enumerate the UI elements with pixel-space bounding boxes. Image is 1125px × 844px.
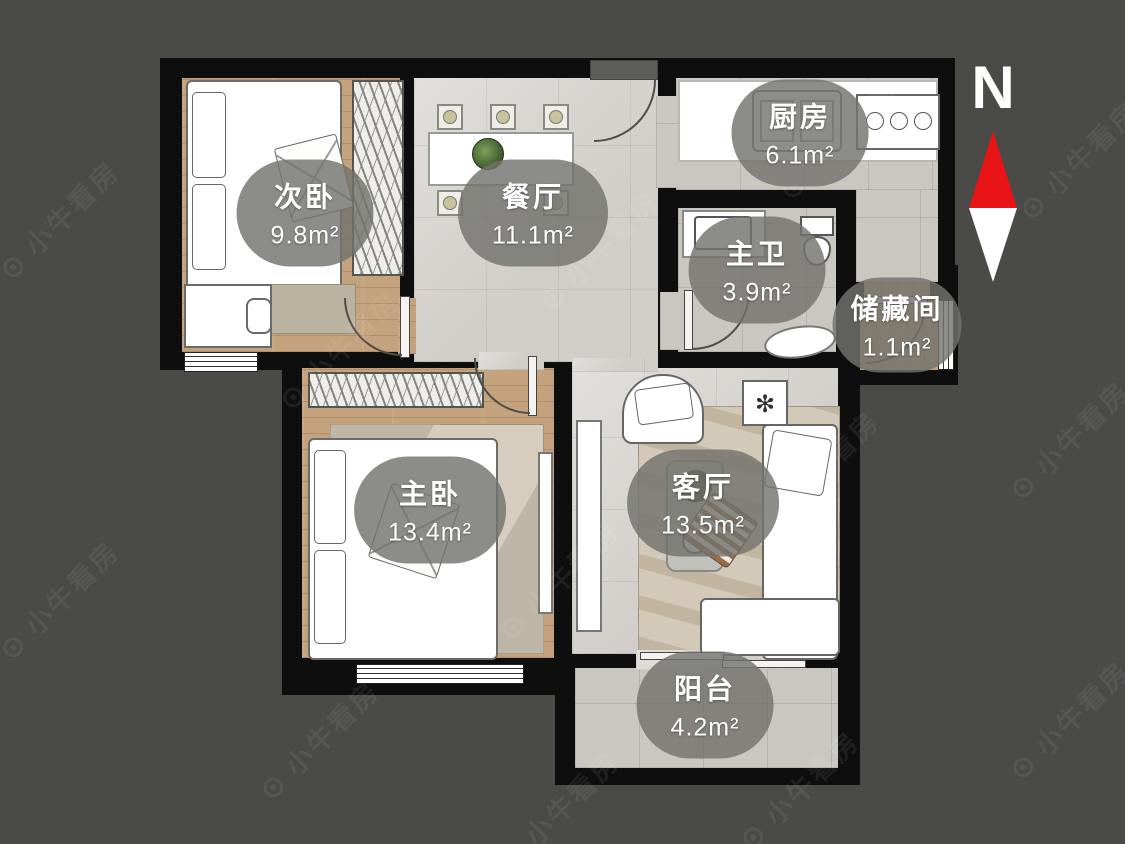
room-area: 1.1m² (850, 334, 943, 363)
room-area: 4.2m² (671, 714, 740, 743)
room-area: 13.5m² (661, 512, 745, 541)
stove-burner-3 (914, 112, 932, 130)
room-name: 阳台 (671, 668, 740, 708)
kitchen-stove-icon (856, 94, 940, 150)
watermark-logo-icon: ⊙ (1003, 465, 1046, 508)
sofa-chaise (700, 598, 840, 656)
watermark-logo-icon: ⊙ (253, 765, 296, 808)
room-area: 3.9m² (723, 279, 792, 308)
compass-north-label: N (963, 58, 1023, 118)
floor-plan: ✻ ⊙小牛看房⊙小牛看房⊙小牛看房⊙小牛看房⊙小牛看房⊙小牛看房⊙小牛看房⊙小牛… (0, 0, 1125, 844)
room-name: 主卫 (723, 233, 792, 273)
desk-chair (246, 298, 272, 334)
hallway-connector (572, 358, 658, 372)
room-area: 11.1m² (492, 222, 574, 251)
stove-burner-2 (890, 112, 908, 130)
master-bed-pillow-1 (314, 450, 346, 544)
watermark-logo-icon: ⊙ (733, 815, 776, 844)
armchair-cushion (634, 382, 694, 425)
doorway-kitchen (656, 96, 678, 188)
watermark-logo-icon: ⊙ (0, 625, 36, 668)
window-master-bedroom (356, 664, 524, 684)
watermark: ⊙小牛看房 (1009, 91, 1125, 229)
room-label-storage-room: 储藏间 1.1m² (832, 278, 961, 373)
watermark-logo-icon: ⊙ (1013, 185, 1056, 228)
watermark-text: 小牛看房 (20, 535, 126, 641)
watermark-logo-icon: ⊙ (0, 245, 36, 288)
room-name: 主卧 (388, 473, 472, 513)
room-name: 客厅 (661, 466, 745, 506)
watermark: ⊙小牛看房 (0, 151, 127, 289)
dining-chair-3 (543, 104, 569, 130)
room-name: 储藏间 (850, 288, 943, 328)
master-wardrobe (308, 372, 484, 408)
room-label-kitchen: 厨房 6.1m² (732, 80, 869, 187)
entry-door-leaf (590, 60, 658, 80)
watermark-logo-icon: ⊙ (1003, 745, 1046, 788)
room-label-secondary-bedroom: 次卧 9.8m² (237, 160, 374, 267)
watermark-text: 小牛看房 (1030, 655, 1125, 761)
room-label-living-room: 客厅 13.5m² (627, 450, 779, 557)
watermark: ⊙小牛看房 (0, 531, 127, 669)
doorway-bathroom (660, 292, 680, 350)
room-label-master-bathroom: 主卫 3.9m² (689, 217, 826, 324)
plant-pot-icon: ✻ (742, 380, 788, 426)
room-area: 6.1m² (766, 142, 835, 171)
room-name: 次卧 (271, 176, 340, 216)
room-name: 餐厅 (492, 176, 574, 216)
watermark: ⊙小牛看房 (999, 651, 1125, 789)
secondary-bed-pillow-1 (192, 92, 226, 178)
room-floor-kitchen-side (856, 190, 938, 282)
tv-console (576, 420, 602, 632)
room-label-balcony: 阳台 4.2m² (637, 652, 774, 759)
watermark-logo-icon: ⊙ (493, 835, 536, 844)
dining-chair-1 (437, 104, 463, 130)
watermark-text: 小牛看房 (1030, 375, 1125, 481)
watermark-text: 小牛看房 (1040, 95, 1125, 201)
master-bed-pillow-2 (314, 550, 346, 644)
window-secondary-bedroom (184, 352, 258, 372)
room-area: 13.4m² (388, 519, 472, 548)
dining-chair-2 (490, 104, 516, 130)
watermark-text: 小牛看房 (20, 155, 126, 261)
compass-needle-south-icon (969, 208, 1017, 282)
master-dresser (538, 452, 553, 614)
room-label-dining-room: 餐厅 11.1m² (458, 160, 608, 267)
room-area: 9.8m² (271, 222, 340, 251)
compass-needle-north-icon (969, 131, 1017, 208)
room-name: 厨房 (766, 96, 835, 136)
stove-burner-1 (866, 112, 884, 130)
secondary-bed-pillow-2 (192, 184, 226, 270)
room-label-master-bedroom: 主卧 13.4m² (354, 457, 506, 564)
watermark: ⊙小牛看房 (999, 371, 1125, 509)
